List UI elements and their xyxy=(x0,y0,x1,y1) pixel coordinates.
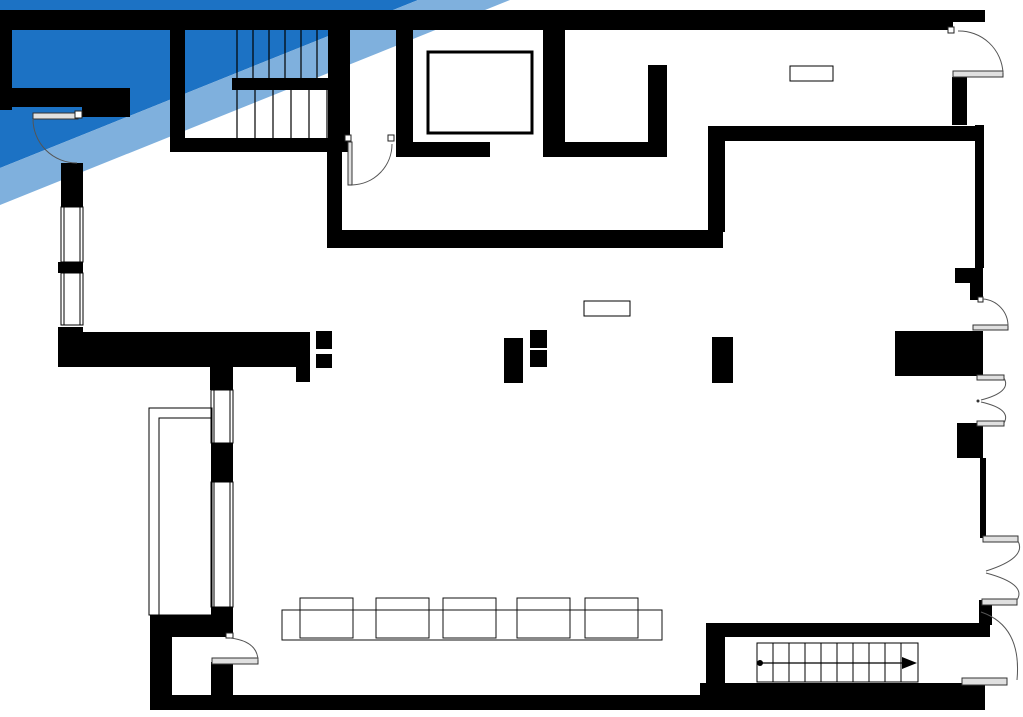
label-box-top-right xyxy=(790,66,833,81)
wall-interior-pier xyxy=(211,443,233,482)
wall-central xyxy=(327,230,723,248)
wall-tr-partition-h xyxy=(711,126,984,141)
door-arc-east-pair2-bottom xyxy=(986,573,1019,600)
door-leaf-ne xyxy=(953,71,1003,77)
door-leaf-east-pair1-bottom xyxy=(977,421,1004,426)
door-arc-east-pair1-top xyxy=(981,378,1006,400)
wall-west-stub xyxy=(61,163,83,207)
door-meeting-dot-east-pair1 xyxy=(977,400,980,403)
pilaster-center-2 xyxy=(530,350,547,367)
door-leaf-east-pair2-bottom xyxy=(982,599,1017,605)
wall-se-stair-left xyxy=(706,623,725,687)
floor-plan-canvas xyxy=(0,0,1023,717)
wall-sw-left xyxy=(150,615,172,710)
wall-ne-door-stub xyxy=(952,77,967,125)
wall-tr-partition-v xyxy=(708,126,725,232)
label-box-center xyxy=(584,301,630,316)
wall-bottom-west xyxy=(150,695,710,710)
door-leaf-east-1 xyxy=(973,325,1008,330)
wall-shaft-right xyxy=(648,65,667,157)
door-leaf-stair xyxy=(348,142,352,185)
wall-bottom-east xyxy=(700,683,985,710)
pilaster-center-1 xyxy=(530,330,547,348)
wall-tl-room-step xyxy=(82,107,130,117)
wall-stair-room-bottom xyxy=(185,138,350,152)
window-west-1-inner xyxy=(64,207,80,262)
door-arc-stair xyxy=(352,144,392,185)
door-arc-east-1 xyxy=(983,299,1008,326)
bottom-stair-start-dot xyxy=(757,660,763,666)
wall-top-band-end xyxy=(953,10,985,22)
door-stop-tl xyxy=(75,111,82,118)
door-leaf-east-pair2-top xyxy=(983,536,1018,542)
door-arc-east-pair1-bottom xyxy=(981,402,1006,423)
door-leaf-tl xyxy=(33,113,78,119)
wall-stair-divider xyxy=(170,28,185,152)
wall-west-step xyxy=(296,367,310,382)
wall-interior-top xyxy=(210,365,233,390)
wall-corridor-west xyxy=(327,140,342,232)
east-solid-block-2 xyxy=(957,423,983,458)
bay-outline-outer xyxy=(149,408,212,615)
wall-east-upper xyxy=(975,125,984,268)
door-leaf-sw xyxy=(212,658,258,664)
door-hinge-east-1 xyxy=(978,297,983,302)
east-solid-block xyxy=(895,331,983,376)
bench-seat-3 xyxy=(443,598,496,638)
wall-tl-left xyxy=(0,10,12,110)
wall-east-lower xyxy=(980,458,986,538)
bench-counter xyxy=(282,610,662,640)
column-center xyxy=(504,338,523,383)
door-arc-east-pair2-top xyxy=(986,541,1020,571)
bay-outline-inner xyxy=(159,418,212,615)
window-interior-1-inner xyxy=(214,390,230,443)
bench-seat-2 xyxy=(376,598,429,638)
window-interior-2-inner xyxy=(214,482,230,607)
wall-elevator-bottom xyxy=(396,142,490,157)
door-arc-sw xyxy=(230,638,258,660)
pilaster-west-2 xyxy=(316,354,332,368)
door-leaf-east-pair1-top xyxy=(977,375,1004,380)
floor-plan-screenshot xyxy=(0,0,1023,717)
door-hinge-stair-b xyxy=(388,135,394,141)
wall-sw-room-block xyxy=(211,662,233,695)
column-east xyxy=(712,337,733,383)
wall-east-notch xyxy=(955,268,983,283)
bench-seat-5 xyxy=(585,598,638,638)
stair-landing-wall xyxy=(232,78,348,90)
wall-west-horizontal xyxy=(58,332,310,367)
door-hinge-sw xyxy=(226,633,233,638)
wall-elevator-left xyxy=(396,10,413,157)
wall-se-stair-top xyxy=(706,623,990,637)
door-arc-ne xyxy=(958,31,1003,73)
door-hinge-ne xyxy=(948,27,954,33)
wall-west-pier xyxy=(58,262,83,273)
door-leaf-se xyxy=(962,678,1007,685)
wall-elevator-right xyxy=(543,30,565,157)
door-hinge-stair-a xyxy=(345,135,351,141)
window-west-2-inner xyxy=(64,273,80,325)
elevator-car xyxy=(428,52,532,133)
bench-seat-1 xyxy=(300,598,353,638)
wall-top-band xyxy=(0,10,953,30)
pilaster-west-1 xyxy=(316,331,332,349)
wall-tl-room-bottom xyxy=(12,88,130,107)
bench-seat-4 xyxy=(517,598,570,638)
